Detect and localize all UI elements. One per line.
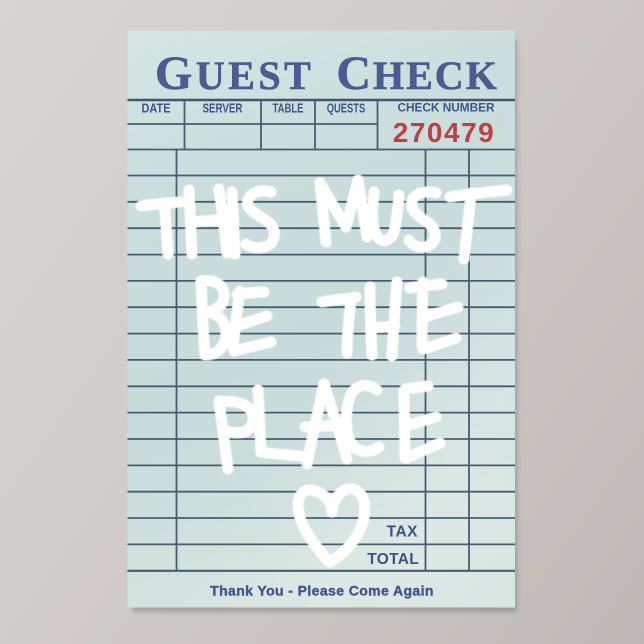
svg-text:QUESTS: QUESTS [327, 101, 366, 116]
svg-text:270479: 270479 [393, 117, 495, 148]
svg-text:DATE: DATE [142, 101, 171, 116]
svg-text:SERVER: SERVER [203, 101, 243, 116]
svg-text:Thank You - Please Come Again: Thank You - Please Come Again [210, 583, 434, 599]
svg-text:TOTAL: TOTAL [367, 551, 419, 568]
svg-text:TABLE: TABLE [273, 101, 304, 116]
svg-text:CHECK NUMBER: CHECK NUMBER [398, 101, 495, 115]
svg-text:TAX: TAX [387, 524, 419, 541]
